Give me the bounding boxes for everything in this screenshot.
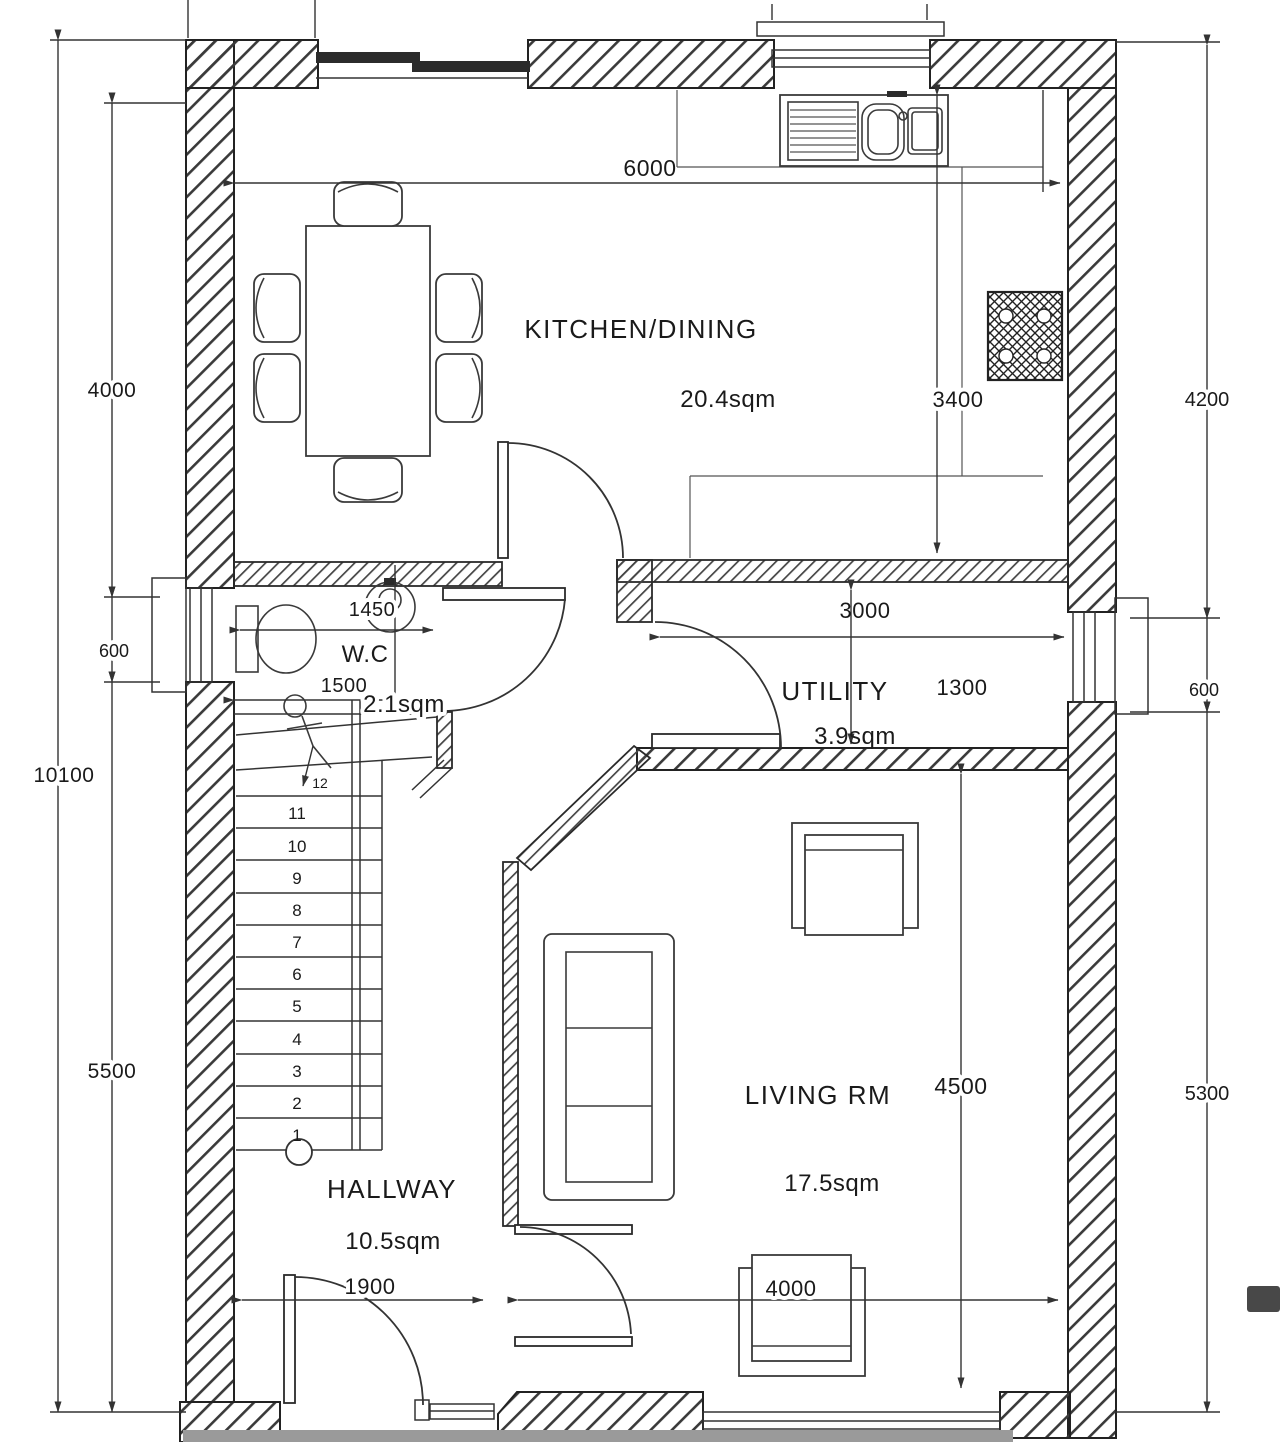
dim-kitchen-width: 6000 bbox=[623, 155, 676, 181]
step-number: 2 bbox=[292, 1094, 301, 1113]
toilet bbox=[236, 605, 316, 673]
dim-left-lower: 5500 bbox=[88, 1060, 137, 1083]
step-number: 3 bbox=[292, 1062, 301, 1081]
step-number: 4 bbox=[292, 1030, 301, 1049]
kitchen-dining-label: KITCHEN/DINING bbox=[524, 314, 757, 344]
wc-area: 2.1sqm bbox=[363, 691, 445, 718]
patio-sliding-door bbox=[316, 52, 530, 78]
dim-utility-depth: 1300 bbox=[937, 675, 988, 700]
living-room-door bbox=[515, 1225, 632, 1346]
wall-top-left-corner bbox=[186, 40, 318, 88]
step-number: 6 bbox=[292, 965, 301, 984]
kitchen-window bbox=[757, 22, 944, 67]
dim-left-upper: 4000 bbox=[88, 379, 137, 402]
dim-wc-length: 1500 bbox=[321, 675, 368, 697]
wall-right-upper bbox=[1068, 88, 1116, 612]
wall-top-pier bbox=[528, 40, 774, 88]
utility-area: 3.9sqm bbox=[814, 723, 896, 750]
kitchen-sink bbox=[780, 91, 948, 166]
wall-top-right bbox=[930, 40, 1116, 88]
step-number: 7 bbox=[292, 933, 301, 952]
front-door-sidelight bbox=[430, 1404, 494, 1419]
hallway-area: 10.5sqm bbox=[345, 1228, 441, 1255]
dim-overall-height: 10100 bbox=[34, 764, 95, 787]
wc-door bbox=[443, 588, 565, 711]
step-number: 8 bbox=[292, 901, 301, 920]
kitchen-door bbox=[498, 442, 623, 558]
cooker-hob bbox=[988, 292, 1062, 380]
step-number: 12 bbox=[312, 775, 328, 791]
scan-band bbox=[183, 1430, 1013, 1442]
step-number: 9 bbox=[292, 869, 301, 888]
dim-hall-door-width: 1900 bbox=[345, 1274, 396, 1299]
stair-winders bbox=[234, 714, 437, 770]
dining-table bbox=[306, 226, 430, 456]
utility-door bbox=[652, 622, 781, 748]
utility-label: UTILITY bbox=[781, 676, 888, 706]
kitchen-dining-area: 20.4sqm bbox=[680, 386, 776, 413]
dim-wc-width: 1450 bbox=[349, 599, 396, 621]
hallway-label: HALLWAY bbox=[327, 1174, 457, 1204]
dim-right-upper: 4200 bbox=[1185, 389, 1230, 411]
armchair-bottom bbox=[739, 1255, 865, 1376]
armchair-top bbox=[792, 823, 918, 935]
wall-kitchen-utility bbox=[617, 560, 1068, 582]
step-number: 10 bbox=[288, 837, 307, 856]
sofa bbox=[544, 934, 674, 1200]
sliding-door-leaf-b bbox=[412, 61, 530, 72]
dim-right-window: 600 bbox=[1189, 680, 1219, 700]
living-area: 17.5sqm bbox=[784, 1170, 880, 1197]
dim-right-lower: 5300 bbox=[1185, 1083, 1230, 1105]
utility-window bbox=[1073, 598, 1148, 714]
scan-mark bbox=[1247, 1286, 1280, 1312]
floor-plan-svg: 1 2 3 4 5 6 7 8 9 10 11 12 bbox=[0, 0, 1280, 1442]
wall-right-lower bbox=[1068, 702, 1116, 1438]
wall-utility-living bbox=[637, 748, 1068, 770]
jamb-utility-door bbox=[617, 560, 652, 622]
basin-tap-icon bbox=[384, 578, 396, 585]
wall-living-chamfer bbox=[517, 746, 650, 870]
wc-window bbox=[152, 578, 212, 692]
stairs: 1 2 3 4 5 6 7 8 9 10 11 12 bbox=[234, 695, 437, 1165]
sliding-door-leaf-a bbox=[316, 52, 420, 63]
wall-left-upper bbox=[186, 40, 234, 588]
wall-wc-stub bbox=[437, 712, 452, 768]
step-number: 5 bbox=[292, 997, 301, 1016]
wall-left-lower bbox=[186, 682, 234, 1402]
dim-living-depth: 4500 bbox=[934, 1073, 987, 1099]
floor-plan-page: 1 2 3 4 5 6 7 8 9 10 11 12 bbox=[0, 0, 1280, 1442]
dim-living-width: 4000 bbox=[766, 1276, 817, 1301]
stair-direction-figure bbox=[284, 695, 331, 786]
living-label: LIVING RM bbox=[745, 1080, 891, 1110]
wc-label: W.C bbox=[342, 641, 389, 668]
wall-living-west bbox=[503, 862, 518, 1226]
tap-icon bbox=[887, 91, 907, 97]
dim-utility-width: 3000 bbox=[840, 598, 891, 623]
dim-kitchen-depth: 3400 bbox=[933, 387, 984, 412]
dim-left-window: 600 bbox=[99, 641, 129, 661]
step-numbers: 1 2 3 4 5 6 7 8 9 10 11 12 bbox=[288, 775, 328, 1145]
step-number: 11 bbox=[288, 804, 306, 823]
step-number: 1 bbox=[292, 1126, 301, 1145]
wall-kitchen-wc bbox=[234, 562, 502, 586]
